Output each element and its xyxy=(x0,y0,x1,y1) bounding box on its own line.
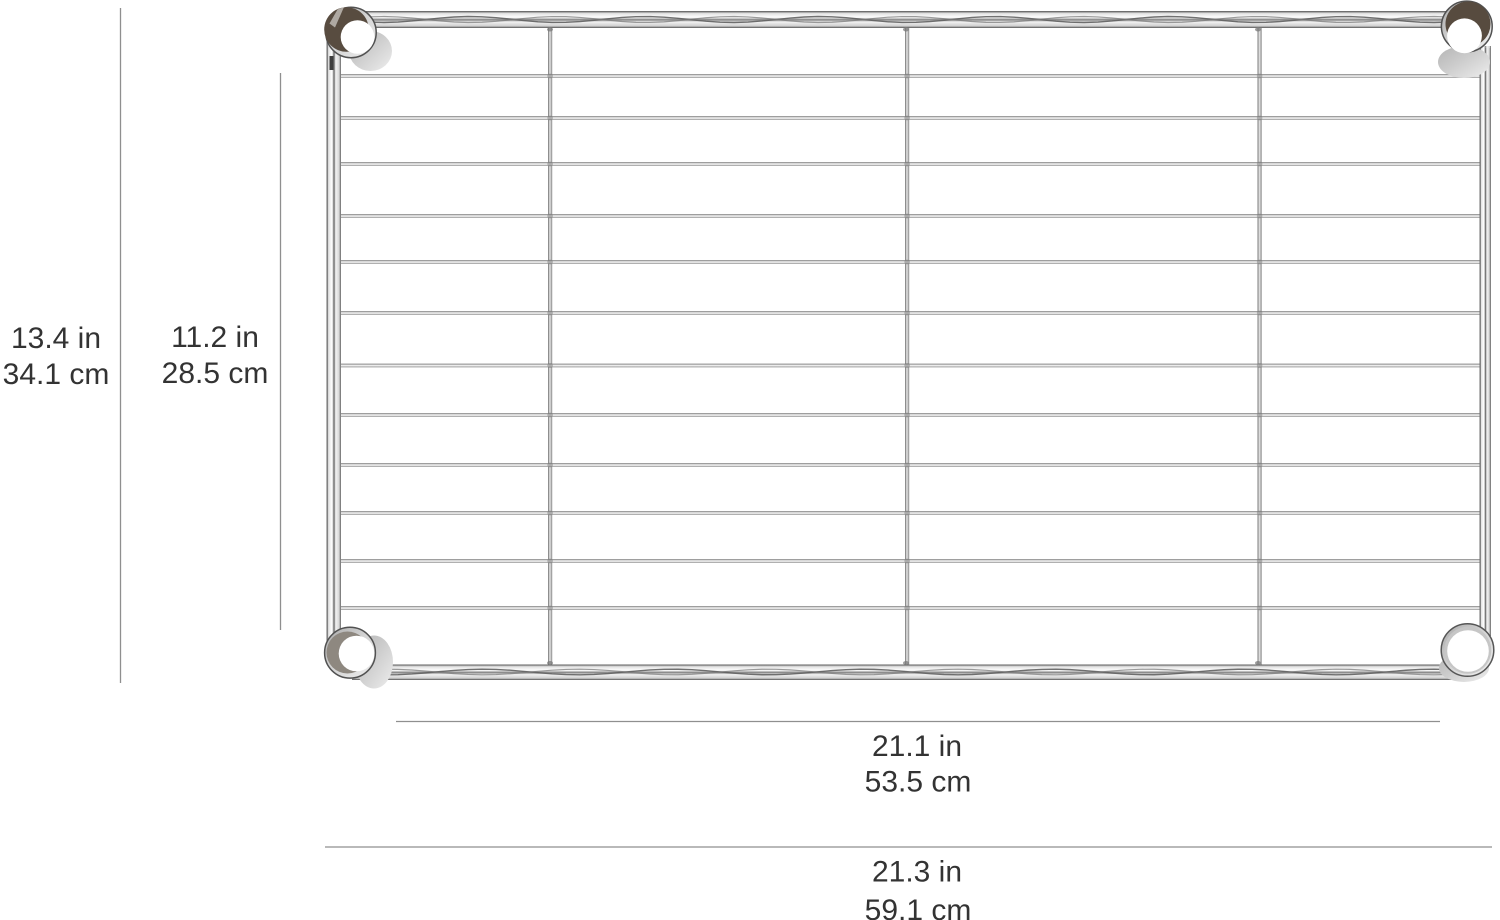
svg-text:21.3 in: 21.3 in xyxy=(872,856,962,889)
svg-text:28.5 cm: 28.5 cm xyxy=(162,357,269,390)
svg-text:21.1 in: 21.1 in xyxy=(872,730,962,763)
svg-text:59.1 cm: 59.1 cm xyxy=(865,894,972,920)
svg-text:11.2 in: 11.2 in xyxy=(171,321,259,354)
svg-text:13.4 in: 13.4 in xyxy=(11,322,101,355)
svg-text:34.1 cm: 34.1 cm xyxy=(3,358,110,391)
svg-text:53.5 cm: 53.5 cm xyxy=(865,766,972,799)
